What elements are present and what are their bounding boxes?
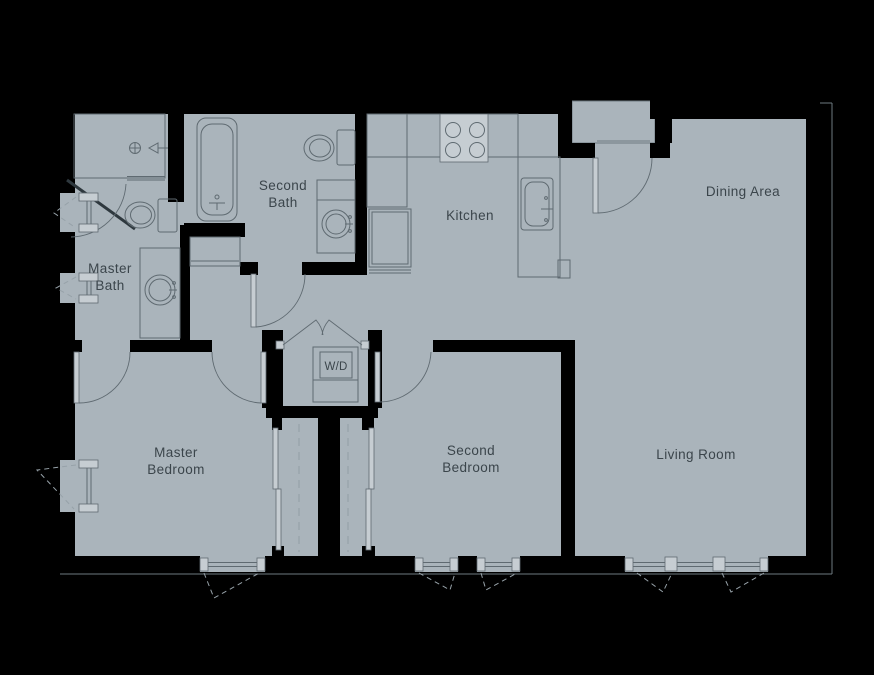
floor-plan: W/D [0,0,874,675]
kitchen-label: Kitchen [446,208,494,223]
wall-left-2 [60,232,75,273]
wall-shower-bath [168,114,184,202]
entry-jamb-left [572,143,595,158]
second-bedroom-label-1: Second [447,443,495,458]
floor-plan-canvas: W/D [0,0,874,675]
wall-bottom-2 [265,556,415,572]
wall-bottom-1 [60,556,200,572]
master-bedroom-label-2: Bedroom [147,462,205,477]
wall-top-dining [650,96,820,119]
entry-jamb-right [650,143,670,158]
wall-entry-right [655,104,672,143]
wall-under-tub [184,223,245,237]
second-bath-label-2: Bath [268,195,297,210]
wall-bath-kitchen [355,114,367,275]
wall-top [60,96,572,114]
range-icon [440,114,488,162]
wall-masterbath-hall [180,225,190,352]
wall-right [806,96,820,572]
wall-bottom-3 [458,556,477,572]
shower-drain-icon [130,143,141,154]
second-bath-label-1: Second [259,178,307,193]
master-bath-label-2: Bath [95,278,124,293]
wall-bottom-5 [768,556,820,572]
wall-secondbed-top [433,340,573,352]
second-bedroom-label-2: Bedroom [442,460,500,475]
dining-area-label: Dining Area [706,184,780,199]
wall-closet-center [318,418,340,558]
wall-closet-divider-h [266,406,378,418]
secondbath-door-jamb [240,262,258,275]
wall-left-1 [60,96,75,193]
wall-masterbed-top-1 [64,340,82,352]
wall-left-3 [60,303,75,460]
wall-entry-left [558,104,572,158]
master-bedroom-label-1: Master [154,445,198,460]
living-room-label: Living Room [656,447,735,462]
wall-living-left [561,340,575,572]
wall-masterbed-top-2 [130,340,212,352]
laundry-label: W/D [325,361,348,373]
master-bath-label-1: Master [88,261,132,276]
entry-nook [572,101,655,143]
